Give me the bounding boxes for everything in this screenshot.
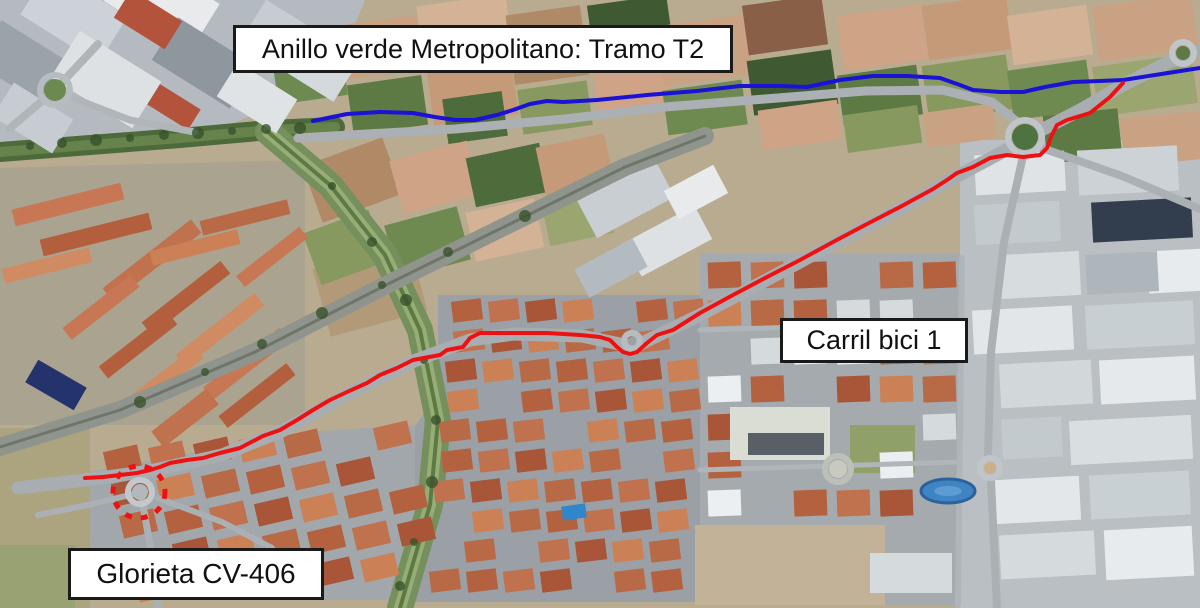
label-anillo-verde-tramo: Anillo verde Metropolitano: Tramo T2 xyxy=(233,25,733,73)
map-figure: Anillo verde Metropolitano: Tramo T2 Car… xyxy=(0,0,1200,608)
satellite-map-image xyxy=(0,0,1200,608)
label-glorieta-cv406: Glorieta CV-406 xyxy=(68,548,324,600)
label-carril-bici: Carril bici 1 xyxy=(780,318,968,363)
